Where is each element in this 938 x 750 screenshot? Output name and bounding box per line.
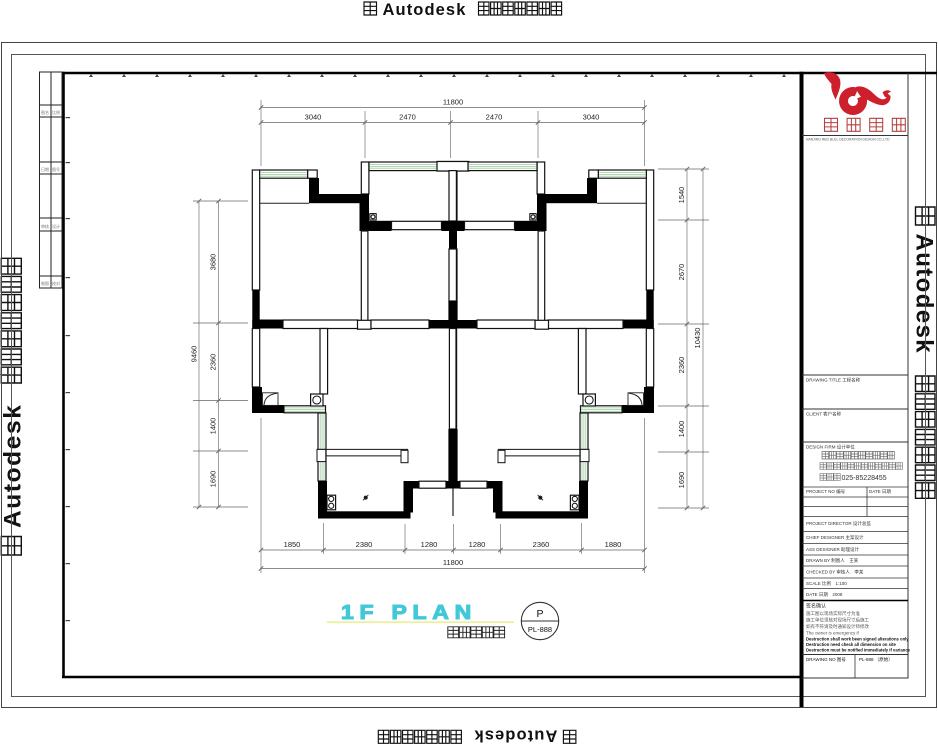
svg-text:1540: 1540: [677, 187, 686, 204]
svg-text:1850: 1850: [284, 540, 301, 549]
svg-text:设计: 设计: [52, 223, 60, 229]
svg-text:PL-888 （原始）: PL-888 （原始）: [859, 656, 893, 663]
svg-text:9460: 9460: [190, 346, 199, 363]
svg-text:CLIENT 客户名称: CLIENT 客户名称: [806, 411, 842, 418]
svg-text:2470: 2470: [486, 113, 503, 122]
svg-text:2360: 2360: [533, 540, 550, 549]
svg-text:图号: 图号: [52, 166, 60, 172]
svg-text:2360: 2360: [209, 354, 218, 371]
svg-text:日期: 日期: [41, 166, 49, 172]
svg-text:DESIGN FIRM 设计单位: DESIGN FIRM 设计单位: [806, 444, 855, 451]
svg-text:NANJING RED BULL DECORATION DE: NANJING RED BULL DECORATION DESIGN CO.,L…: [806, 138, 890, 142]
svg-text:2360: 2360: [677, 357, 686, 374]
svg-text:Autodesk: Autodesk: [911, 234, 938, 355]
svg-text:2470: 2470: [399, 113, 416, 122]
svg-text:11800: 11800: [443, 558, 463, 567]
svg-text:P: P: [536, 608, 543, 620]
svg-text:审核: 审核: [41, 223, 49, 229]
svg-text:施工单位须核对现场尺寸后施工: 施工单位须核对现场尺寸后施工: [806, 617, 869, 624]
svg-text:比例: 比例: [52, 109, 60, 115]
svg-text:10430: 10430: [693, 328, 702, 349]
svg-text:Autodesk: Autodesk: [0, 404, 26, 528]
svg-text:3680: 3680: [209, 254, 218, 271]
svg-text:施工图以现场实际尺寸为准: 施工图以现场实际尺寸为准: [806, 610, 860, 617]
svg-text:制图: 制图: [41, 280, 49, 286]
svg-text:PROJECT DIRECTOR 设计总监: PROJECT DIRECTOR 设计总监: [806, 520, 871, 527]
svg-text:2380: 2380: [356, 540, 373, 549]
svg-text:1400: 1400: [677, 421, 686, 438]
svg-text:PROJECT NO 编号: PROJECT NO 编号: [806, 488, 846, 495]
svg-text:The owner is emergency if: The owner is emergency if: [806, 631, 860, 636]
svg-text:1280: 1280: [469, 540, 486, 549]
svg-text:ASS DESIGNER 助理设计: ASS DESIGNER 助理设计: [806, 546, 860, 553]
svg-text:签名确认: 签名确认: [806, 603, 826, 610]
svg-text:1690: 1690: [677, 472, 686, 489]
svg-text:Autodesk: Autodesk: [383, 1, 467, 19]
svg-text:DRAWN BY 制图人 王某: DRAWN BY 制图人 王某: [806, 557, 859, 564]
svg-text:3040: 3040: [583, 113, 600, 122]
svg-text:CHECKED BY 审核人 李某: CHECKED BY 审核人 李某: [806, 569, 864, 576]
svg-text:11800: 11800: [443, 98, 463, 107]
svg-text:校对: 校对: [52, 280, 60, 286]
svg-text:Destruction need check all dim: Destruction need check all dimension on …: [806, 642, 896, 647]
svg-text:2670: 2670: [677, 264, 686, 281]
svg-text:025-85228455: 025-85228455: [842, 475, 887, 482]
svg-text:1400: 1400: [209, 418, 218, 435]
svg-text:图名: 图名: [41, 109, 49, 115]
svg-text:1690: 1690: [209, 471, 218, 488]
svg-text:1880: 1880: [605, 540, 622, 549]
svg-text:Destruction must be notified i: Destruction must be notified immediately…: [806, 648, 911, 653]
svg-text:3040: 3040: [305, 113, 322, 122]
svg-text:1F PLAN: 1F PLAN: [341, 602, 477, 624]
svg-text:Destruction shall work been si: Destruction shall work been signed alter…: [806, 637, 909, 642]
svg-text:CHIEF DESIGNER 主案设计: CHIEF DESIGNER 主案设计: [806, 534, 864, 541]
svg-text:SCALE 比例 1:100: SCALE 比例 1:100: [806, 580, 847, 587]
svg-text:如有不符请及时通知设计师修改: 如有不符请及时通知设计师修改: [806, 623, 869, 630]
svg-text:DRAWING TITLE 工程名称: DRAWING TITLE 工程名称: [806, 377, 861, 384]
svg-text:Autodesk: Autodesk: [473, 727, 557, 745]
svg-text:1280: 1280: [421, 540, 438, 549]
svg-text:PL-888: PL-888: [528, 625, 552, 634]
